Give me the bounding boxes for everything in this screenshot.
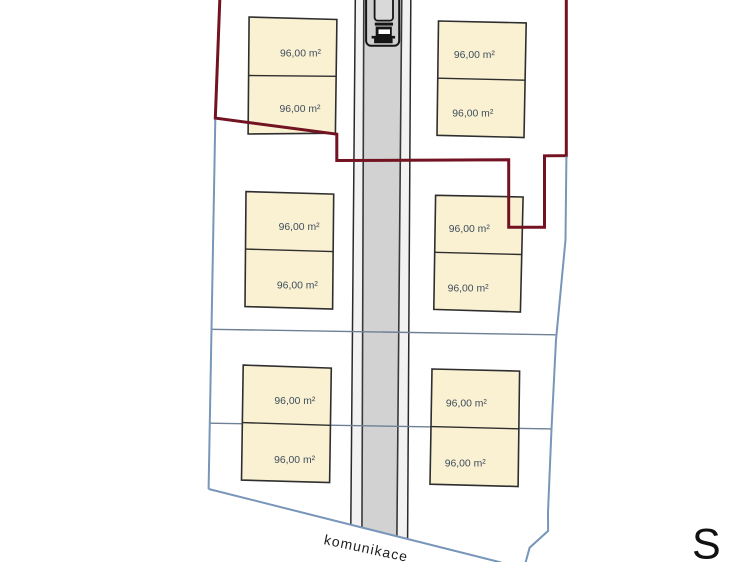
svg-text:96,00 m²: 96,00 m²: [277, 280, 319, 291]
svg-text:96,00 m²: 96,00 m²: [449, 224, 491, 235]
svg-text:96,00 m²: 96,00 m²: [454, 50, 496, 61]
svg-text:96,00 m²: 96,00 m²: [274, 455, 316, 466]
svg-text:96,00 m²: 96,00 m²: [274, 396, 316, 407]
svg-text:96,00 m²: 96,00 m²: [279, 104, 321, 115]
svg-text:96,00 m²: 96,00 m²: [446, 399, 488, 410]
svg-text:S: S: [692, 521, 721, 562]
svg-text:96,00 m²: 96,00 m²: [445, 459, 487, 470]
svg-text:96,00 m²: 96,00 m²: [280, 48, 322, 59]
svg-text:96,00 m²: 96,00 m²: [452, 109, 494, 120]
svg-text:96,00 m²: 96,00 m²: [279, 222, 321, 233]
svg-text:96,00 m²: 96,00 m²: [448, 283, 490, 294]
